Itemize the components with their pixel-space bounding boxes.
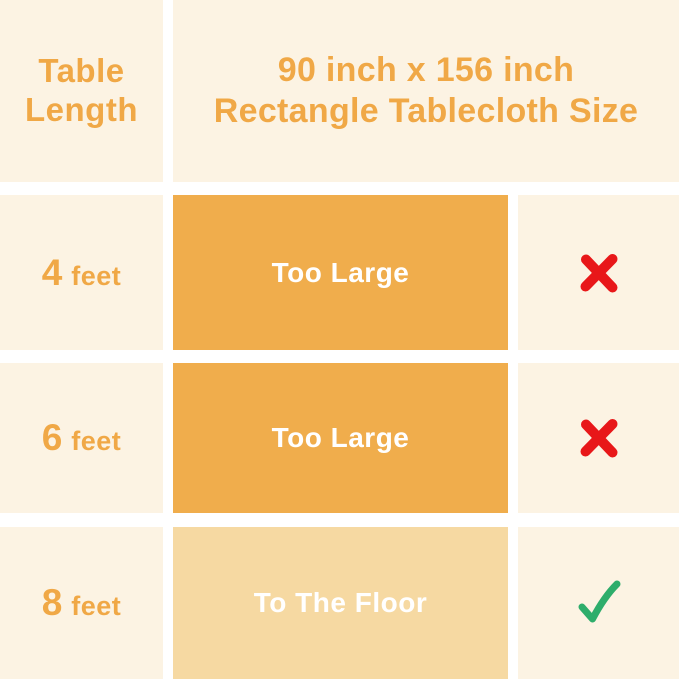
row-6ft-fit-cell: Too Large [173,363,508,513]
length-value: 4 [42,252,63,294]
length-unit: feet [71,591,121,622]
row-6ft-fit-label: Too Large [272,422,410,454]
row-6ft-length-cell: 6 feet [0,363,163,513]
cross-icon [577,250,621,296]
row-8ft-fit-cell: To The Floor [173,527,508,679]
cross-icon [577,415,621,461]
length-unit: feet [71,261,121,292]
row-4ft-verdict-cell [518,195,679,350]
check-icon [573,578,625,628]
tablecloth-size-title: 90 inch x 156 inch Rectangle Tablecloth … [214,50,638,133]
tablecloth-size-table: Table Length 90 inch x 156 inch Rectangl… [0,0,679,679]
length-value: 8 [42,582,63,624]
row-4ft-length-cell: 4 feet [0,195,163,350]
row-4ft-fit-cell: Too Large [173,195,508,350]
row-4ft-fit-label: Too Large [272,257,410,289]
length-unit: feet [71,426,121,457]
row-6ft-length-label: 6 feet [42,417,122,459]
row-4ft-length-label: 4 feet [42,252,122,294]
row-8ft-length-cell: 8 feet [0,527,163,679]
row-8ft-fit-label: To The Floor [254,587,427,619]
row-8ft-length-label: 8 feet [42,582,122,624]
table-length-header-cell: Table Length [0,0,163,182]
row-6ft-verdict-cell [518,363,679,513]
row-8ft-verdict-cell [518,527,679,679]
tablecloth-size-title-cell: 90 inch x 156 inch Rectangle Tablecloth … [173,0,679,182]
table-length-header-label: Table Length [25,52,138,130]
length-value: 6 [42,417,63,459]
